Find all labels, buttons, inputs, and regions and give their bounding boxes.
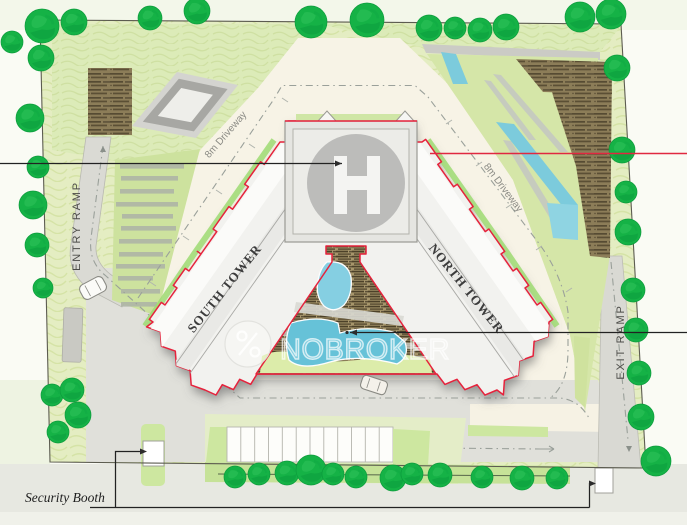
svg-text:EXIT RAMP: EXIT RAMP: [615, 304, 627, 379]
svg-text:ENTRY RAMP: ENTRY RAMP: [71, 181, 83, 271]
svg-text:NOBROKER: NOBROKER: [280, 334, 450, 366]
svg-text:Security Booth: Security Booth: [25, 490, 105, 505]
